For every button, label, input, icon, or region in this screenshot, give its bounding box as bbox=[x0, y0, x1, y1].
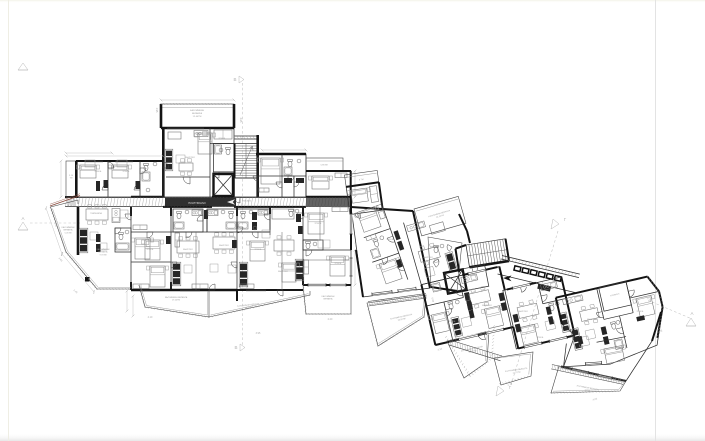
svg-text:Β: Β bbox=[234, 345, 237, 350]
svg-text:ΚΑΘΙΣΤΙΚΟ: ΚΑΘΙΣΤΙΚΟ bbox=[587, 318, 598, 321]
svg-text:ΚΑΛΥΜΜΕΝΗ: ΚΑΛΥΜΜΕΝΗ bbox=[322, 295, 335, 298]
svg-text:ΥΠΝΟΔ.: ΥΠΝΟΔ. bbox=[536, 336, 544, 339]
svg-text:12.40ΤΜ: 12.40ΤΜ bbox=[193, 116, 202, 118]
svg-text:ΒΕΡΑΝΤΑ: ΒΕΡΑΝΤΑ bbox=[63, 229, 73, 232]
svg-text:ΒΕΡΑΝΤΑ: ΒΕΡΑΝΤΑ bbox=[192, 112, 202, 115]
svg-text:ΚΑΘΙΣΤΙΚΟ: ΚΑΘΙΣΤΙΚΟ bbox=[183, 248, 194, 251]
svg-text:ΒΕΡΑΝΤΑ: ΒΕΡΑΝΤΑ bbox=[98, 251, 108, 254]
svg-text:ΥΠΝΟΔ.: ΥΠΝΟΔ. bbox=[448, 320, 456, 323]
svg-text:ΚΑΛΥΜΜΕΝΗ ΒΕΡΑΝΤΑ: ΚΑΛΥΜΜΕΝΗ ΒΕΡΑΝΤΑ bbox=[165, 296, 188, 299]
svg-text:ΚΑΛΥΜΜΕΝΗ: ΚΑΛΥΜΜΕΝΗ bbox=[190, 109, 204, 112]
svg-text:ΤΜ: ΤΜ bbox=[70, 178, 73, 180]
svg-text:ΥΠΝΟΔ.: ΥΠΝΟΔ. bbox=[386, 238, 394, 241]
svg-text:ΥΠΝΟΔ.: ΥΠΝΟΔ. bbox=[218, 137, 226, 140]
svg-text:ΠΛΑΤΥΣΚΑΛΟ: ΠΛΑΤΥΣΚΑΛΟ bbox=[188, 201, 205, 205]
svg-text:ΥΠΝΟΔ.: ΥΠΝΟΔ. bbox=[334, 262, 342, 265]
svg-text:ΚΑΘΙΣΤΙΚΟ: ΚΑΘΙΣΤΙΚΟ bbox=[219, 244, 230, 247]
svg-text:ΚΑΘΙΣΤΙΚΟ: ΚΑΘΙΣΤΙΚΟ bbox=[423, 256, 434, 259]
svg-text:ΥΠΝΟΔ.: ΥΠΝΟΔ. bbox=[122, 170, 130, 173]
svg-text:ΚΑΘΙΣΤΙΚΟ: ΚΑΘΙΣΤΙΚΟ bbox=[278, 270, 289, 273]
svg-text:3.95: 3.95 bbox=[256, 332, 261, 335]
svg-text:ΒΕΡΑΝΤΑ: ΒΕΡΑΝΤΑ bbox=[323, 298, 333, 301]
svg-text:5.05ΤΜ: 5.05ΤΜ bbox=[65, 232, 72, 234]
svg-text:ΥΠΝΟΔ.: ΥΠΝΟΔ. bbox=[314, 222, 322, 225]
svg-text:ΚΑΛΥΜΜΕΝΗ: ΚΑΛΥΜΜΕΝΗ bbox=[97, 248, 110, 251]
svg-text:ΥΠΝΟΔ.: ΥΠΝΟΔ. bbox=[254, 248, 262, 251]
svg-text:ΥΠΝΟΔ.: ΥΠΝΟΔ. bbox=[146, 248, 154, 251]
svg-text:ΥΠΝΟΔ.: ΥΠΝΟΔ. bbox=[94, 170, 102, 173]
svg-text:Α: Α bbox=[690, 311, 693, 316]
svg-text:Β: Β bbox=[233, 77, 236, 82]
svg-text:5.85ΤΜ: 5.85ΤΜ bbox=[320, 165, 327, 167]
svg-text:3.65: 3.65 bbox=[239, 118, 242, 123]
svg-text:ΕΙΣΟΔΟΣ: ΕΙΣΟΔΟΣ bbox=[243, 199, 252, 202]
svg-text:ΚΑΘΙΣΤΙΚΟ: ΚΑΘΙΣΤΙΚΟ bbox=[482, 304, 493, 307]
svg-text:9.70ΤΜ: 9.70ΤΜ bbox=[100, 254, 107, 256]
svg-text:4.10: 4.10 bbox=[148, 316, 153, 319]
svg-text:19.20ΤΜ: 19.20ΤΜ bbox=[172, 300, 180, 302]
svg-text:1.95: 1.95 bbox=[155, 108, 158, 113]
svg-text:ΚΑΘΙΣΤΙΚΟ: ΚΑΘΙΣΤΙΚΟ bbox=[518, 310, 529, 313]
svg-text:Α: Α bbox=[21, 216, 24, 221]
svg-text:ΤΡΑΠΕΖΑΡΙΑ: ΤΡΑΠΕΖΑΡΙΑ bbox=[90, 212, 102, 215]
svg-text:ΚΑΘΙΣΤΙΚΟ: ΚΑΘΙΣΤΙΚΟ bbox=[185, 156, 196, 159]
svg-text:ΚΑΛΥΜΜΕΝΗ: ΚΑΛΥΜΜΕΝΗ bbox=[62, 226, 75, 229]
svg-text:ΥΠΝΟΔ.: ΥΠΝΟΔ. bbox=[636, 310, 644, 313]
svg-text:2.20: 2.20 bbox=[328, 318, 333, 321]
